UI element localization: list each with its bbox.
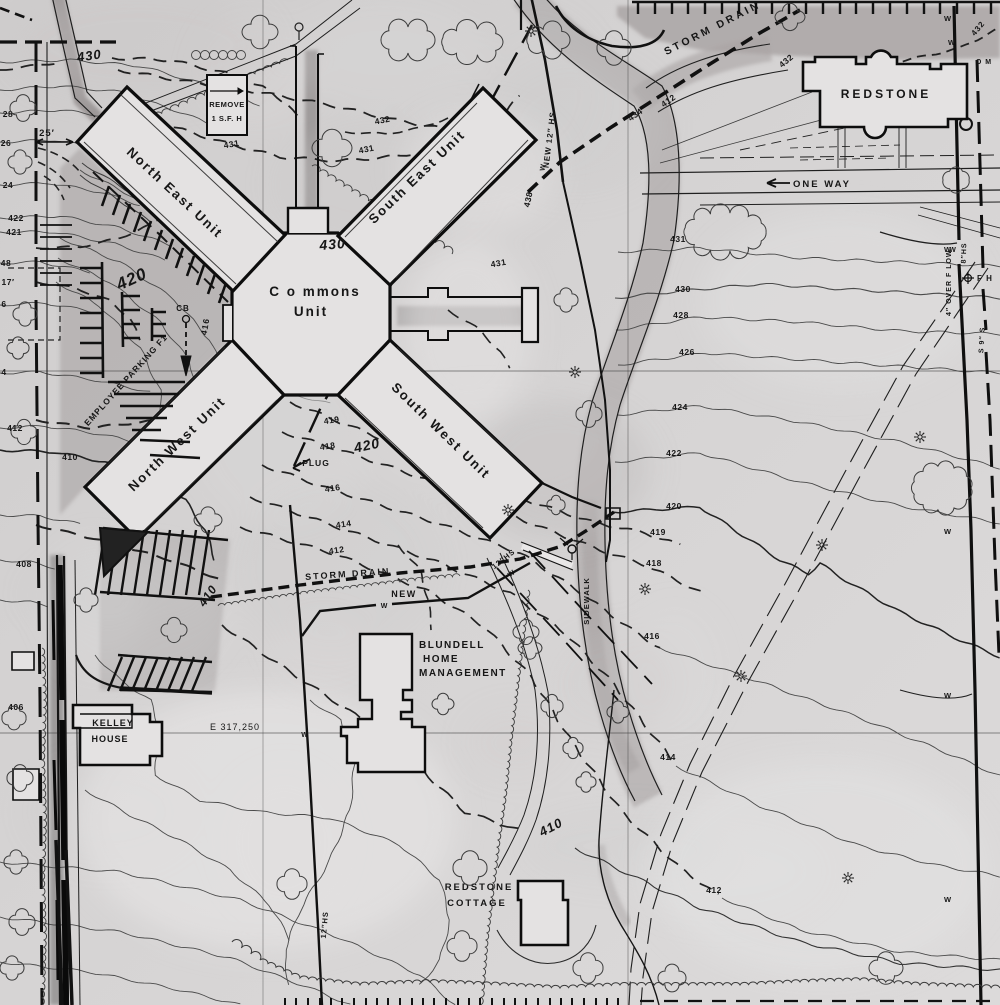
svg-text:REDSTONE: REDSTONE	[841, 87, 931, 101]
svg-text:422: 422	[8, 213, 24, 223]
svg-text:6: 6	[1, 299, 6, 309]
svg-text:28: 28	[3, 109, 13, 119]
svg-text:CB: CB	[176, 304, 190, 313]
svg-text:410: 410	[62, 452, 78, 462]
svg-text:430: 430	[675, 284, 691, 294]
svg-text:W: W	[381, 603, 388, 610]
svg-text:W: W	[301, 732, 309, 739]
svg-text:25′: 25′	[39, 128, 55, 139]
svg-text:412: 412	[706, 885, 722, 895]
svg-text:HOME: HOME	[423, 654, 459, 665]
svg-text:422: 422	[666, 448, 682, 458]
svg-text:420: 420	[666, 501, 682, 511]
svg-text:HOUSE: HOUSE	[91, 734, 128, 744]
svg-text:REMOVE: REMOVE	[209, 100, 245, 109]
svg-text:430: 430	[318, 235, 347, 253]
svg-text:8″HS: 8″HS	[961, 242, 969, 263]
svg-text:C o mmons: C o mmons	[269, 284, 361, 299]
svg-text:COTTAGE: COTTAGE	[447, 898, 507, 909]
svg-text:419: 419	[650, 527, 666, 537]
svg-text:431: 431	[670, 234, 686, 244]
svg-text:NEW: NEW	[391, 589, 417, 599]
svg-text:414: 414	[660, 752, 676, 762]
svg-text:17′: 17′	[2, 277, 15, 287]
svg-text:4: 4	[1, 367, 6, 377]
svg-text:PLUG: PLUG	[302, 458, 330, 468]
svg-text:O M: O M	[976, 59, 992, 66]
svg-text:W: W	[944, 895, 952, 904]
svg-text:MANAGEMENT: MANAGEMENT	[419, 668, 507, 679]
svg-text:W: W	[944, 691, 952, 700]
svg-text:412: 412	[7, 423, 23, 433]
svg-text:W: W	[944, 527, 952, 536]
svg-text:E 317,250: E 317,250	[210, 722, 260, 732]
svg-text:24: 24	[3, 180, 13, 190]
svg-text:S 9″ S: S 9″ S	[978, 327, 986, 354]
svg-text:ONE WAY: ONE WAY	[793, 179, 851, 190]
svg-text:416: 416	[644, 631, 660, 641]
svg-text:REDSTONE: REDSTONE	[445, 882, 514, 893]
svg-text:4″ OVER F LOW: 4″ OVER F LOW	[946, 249, 953, 316]
svg-text:BLUNDELL: BLUNDELL	[419, 640, 485, 651]
svg-text:F H: F H	[977, 274, 993, 283]
svg-text:421: 421	[6, 227, 22, 237]
svg-text:428: 428	[673, 310, 689, 320]
svg-text:408: 408	[16, 559, 32, 569]
svg-text:KELLEY: KELLEY	[92, 718, 134, 728]
svg-text:1 S.F. H: 1 S.F. H	[212, 114, 243, 123]
svg-text:424: 424	[672, 402, 688, 412]
svg-text:26: 26	[1, 138, 11, 148]
svg-text:418: 418	[646, 558, 662, 568]
svg-text:W: W	[944, 14, 952, 23]
svg-text:SIDEWALK: SIDEWALK	[582, 577, 591, 625]
svg-text:Unit: Unit	[294, 304, 328, 319]
svg-text:48: 48	[1, 258, 11, 268]
svg-text:426: 426	[679, 347, 695, 357]
svg-text:W: W	[948, 38, 956, 47]
